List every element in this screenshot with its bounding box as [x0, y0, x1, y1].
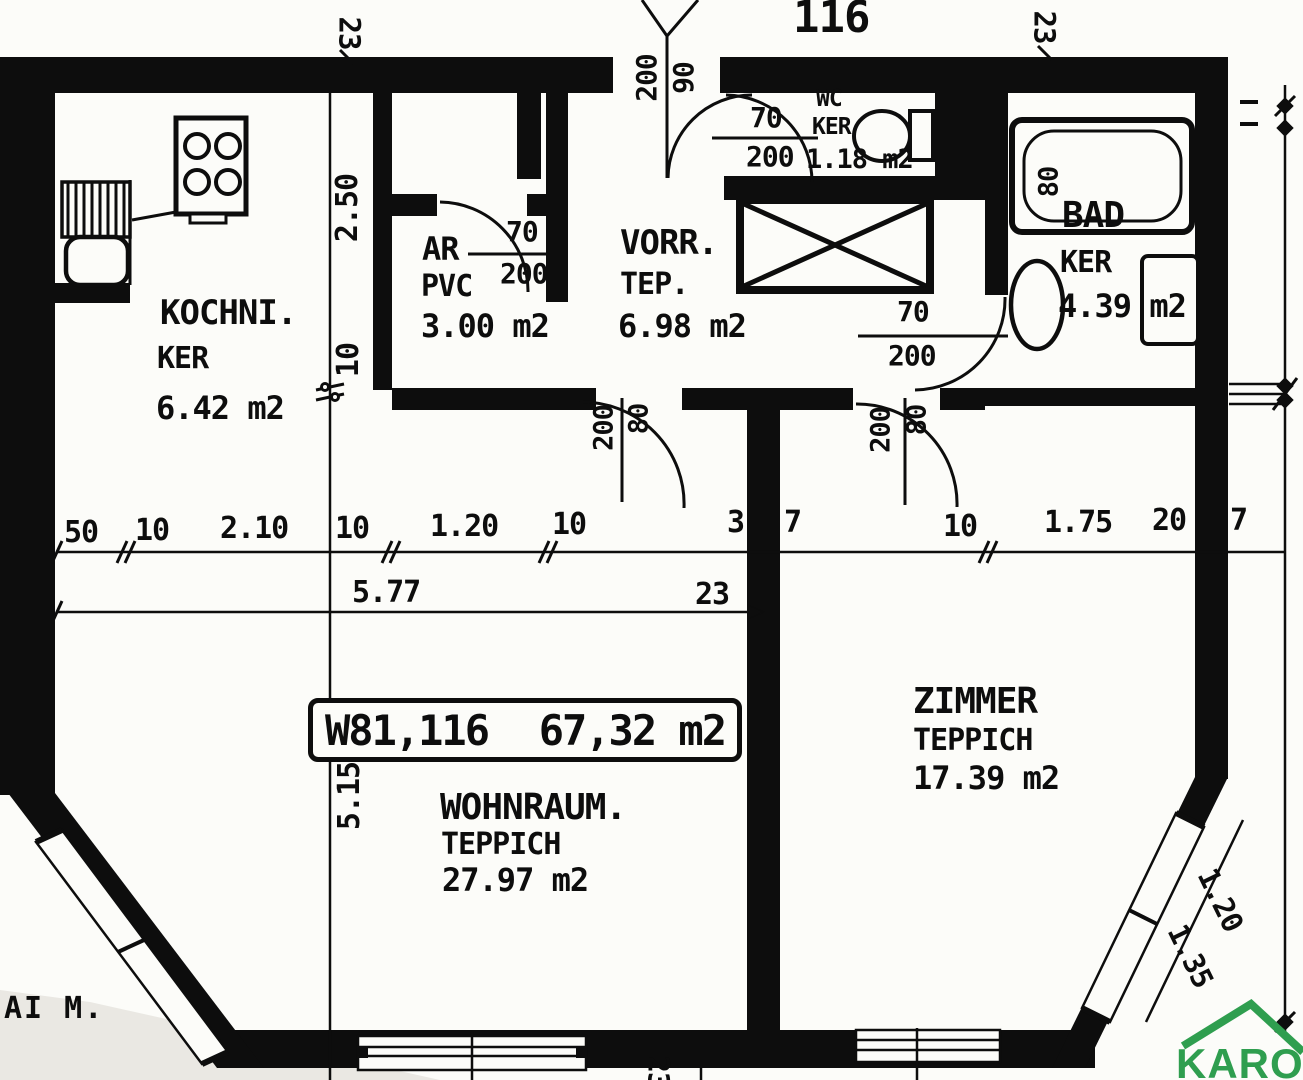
margin-note: AI M.	[4, 994, 104, 1024]
dim-1-20: 1.20	[430, 512, 498, 542]
dim-2-50: 2.50	[333, 174, 363, 242]
dim-10-wall: 10	[334, 343, 364, 377]
sink-icon	[66, 237, 128, 285]
stove-tab	[190, 214, 226, 223]
washbasin-icon	[1011, 261, 1063, 349]
dim-10: 10	[135, 516, 169, 546]
burner-icon	[185, 170, 209, 194]
floor-plan-drawing	[0, 0, 1303, 1080]
wall-kitchen-east	[373, 93, 392, 390]
unit-summary-box: W81,116 67,32 m2	[308, 698, 742, 762]
area-label-wc: 1.18 m2	[806, 146, 913, 173]
floor-label-storage: PVC	[421, 272, 472, 302]
wall-top-left	[0, 57, 613, 93]
floor-label-room: TEPPICH	[913, 726, 1032, 756]
dim-2-10: 2.10	[220, 514, 288, 544]
unit-code: W81,116	[325, 706, 488, 755]
counter-edge	[132, 212, 176, 220]
room-window	[856, 1030, 1000, 1062]
area-label-living: 27.97 m2	[442, 864, 588, 896]
floor-plan-scan: 116 KOCHNI. KER 6.42 m2 AR PVC 3.00 m2 V…	[0, 0, 1303, 1080]
door-size-room-h: 200	[868, 407, 895, 453]
door-size-living-w: 80	[626, 404, 653, 435]
wall-ar-jamb	[527, 194, 546, 216]
wall-bath-south	[985, 388, 1197, 406]
dim-3: 3	[727, 508, 744, 538]
shaft	[740, 200, 930, 290]
burner-icon	[185, 134, 209, 158]
dim-23-top-left: 23	[335, 17, 364, 50]
entrance-corridor-swing	[642, 0, 698, 36]
floor-label-bath: KER	[1060, 248, 1111, 278]
wall-hall-south-b	[682, 388, 853, 410]
karos-logo: KAROS	[1176, 1040, 1303, 1080]
floor-label-kitchen: KER	[157, 344, 208, 374]
door-size-bath-h: 200	[888, 342, 936, 370]
wall-living-room-separator	[747, 410, 780, 1035]
dim-23-top-right: 23	[1030, 11, 1059, 44]
room-label-hall: VORR.	[620, 226, 717, 260]
bay-window-right	[1082, 813, 1204, 1022]
wall-right	[1195, 93, 1228, 779]
door-size-entrance-w: 90	[670, 62, 698, 94]
area-label-hall: 6.98 m2	[618, 310, 746, 342]
dim-20: 20	[1152, 506, 1186, 536]
dim-50: 50	[64, 518, 98, 548]
wall-top-right	[720, 57, 1228, 93]
dim-10: 10	[335, 514, 369, 544]
drainer-icon	[62, 182, 130, 237]
room-label-kitchen: KOCHNI.	[160, 296, 296, 330]
wall-ar-east	[546, 93, 568, 302]
wall-stub	[517, 93, 541, 179]
dim-5-77: 5.77	[352, 578, 420, 608]
burner-icon	[216, 134, 240, 158]
unit-area: 67,32 m2	[539, 706, 725, 755]
floor-label-living: TEPPICH	[441, 830, 560, 860]
dim-10: 10	[943, 512, 977, 542]
stove-icon	[176, 118, 246, 214]
door-size-room-w: 80	[904, 405, 931, 436]
dim-7: 7	[784, 508, 801, 538]
area-label-bath: 4.39 m2	[1058, 290, 1186, 322]
dim-10: 10	[552, 510, 586, 540]
door-size-bath-w: 70	[897, 298, 929, 326]
burner-icon	[216, 170, 240, 194]
wall-hall-south-a	[392, 388, 596, 410]
wall-ar-north	[392, 194, 437, 216]
area-label-room: 17.39 m2	[913, 762, 1059, 794]
area-label-storage: 3.00 m2	[421, 310, 549, 342]
wall-hall-south-c	[940, 388, 985, 410]
dim-tub-80: 80	[1036, 167, 1063, 198]
room-label-bath: BAD	[1062, 198, 1124, 234]
door-size-wc-h: 200	[746, 143, 794, 171]
floor-label-hall: TEP.	[620, 270, 688, 300]
kitchen-fixtures	[62, 118, 246, 285]
door-size-wc-w: 70	[750, 104, 782, 132]
dim-7: 7	[1230, 506, 1247, 536]
right-dim-ticks	[1229, 96, 1297, 1032]
wall-left	[0, 93, 55, 795]
wall-bath-west	[985, 200, 1008, 295]
dim-23-sub: 23	[695, 580, 729, 610]
room-label-living: WOHNRAUM.	[440, 790, 626, 826]
door-size-entrance-h: 200	[633, 54, 661, 102]
wall-wc-bath	[935, 93, 1008, 200]
door-size-storage-h: 200	[500, 260, 548, 288]
room-label-room: ZIMMER	[913, 684, 1037, 720]
room-label-wc: WC	[816, 88, 842, 111]
floor-label-wc: KER	[812, 116, 851, 139]
dim-5-15: 5.15	[335, 762, 365, 830]
door-size-storage-w: 70	[506, 218, 538, 246]
area-label-kitchen: 6.42 m2	[156, 392, 284, 424]
apartment-number: 116	[793, 0, 869, 40]
door-size-living-h: 200	[591, 405, 618, 451]
room-label-storage: AR	[422, 233, 459, 265]
dim-23-bottom: 23	[644, 1056, 673, 1080]
dim-1-75: 1.75	[1044, 508, 1112, 538]
